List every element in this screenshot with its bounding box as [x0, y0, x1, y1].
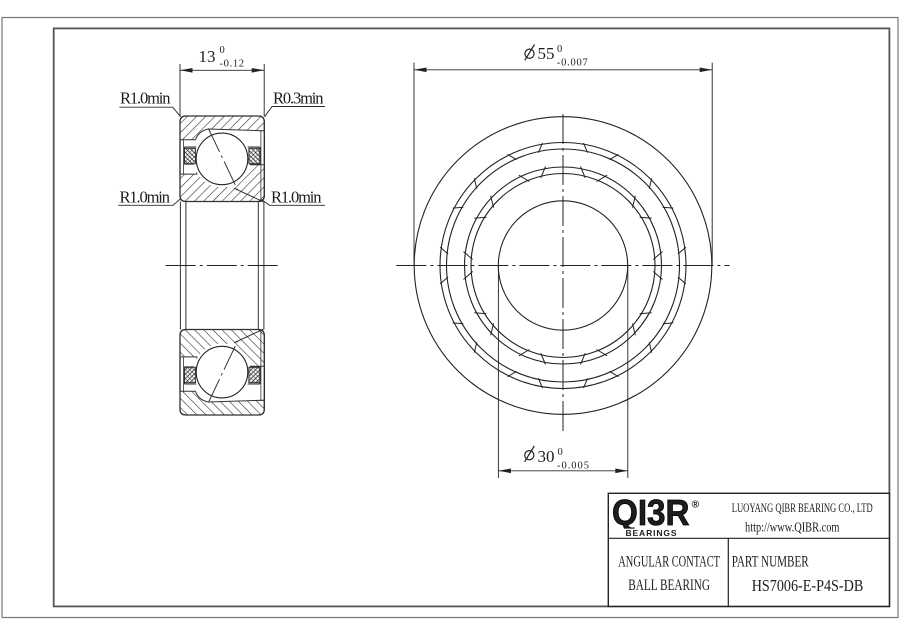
- svg-text:-0.007: -0.007: [557, 58, 588, 69]
- svg-text:0: 0: [220, 45, 225, 56]
- svg-text:R0.3min: R0.3min: [273, 89, 324, 108]
- svg-text:R1.0min: R1.0min: [271, 188, 322, 207]
- svg-text:30: 30: [538, 447, 555, 466]
- svg-text:BEARINGS: BEARINGS: [626, 528, 677, 538]
- svg-text:-0.12: -0.12: [220, 59, 245, 70]
- svg-text:R1.0min: R1.0min: [120, 88, 171, 107]
- svg-text:PART NUMBER: PART NUMBER: [732, 554, 809, 571]
- svg-text:0: 0: [557, 44, 562, 55]
- svg-text:13: 13: [199, 47, 216, 66]
- svg-text:LUOYANG QIBR BEARING CO., LTD: LUOYANG QIBR BEARING CO., LTD: [732, 501, 873, 515]
- svg-text:55: 55: [538, 44, 555, 63]
- svg-text:-0.005: -0.005: [557, 461, 589, 472]
- svg-text:HS7006-E-P4S-DB: HS7006-E-P4S-DB: [752, 576, 864, 595]
- svg-text:®: ®: [692, 499, 700, 511]
- svg-text:R1.0min: R1.0min: [120, 188, 171, 207]
- svg-text:http://www.QIBR.com: http://www.QIBR.com: [745, 520, 840, 535]
- svg-text:ANGULAR CONTACT: ANGULAR CONTACT: [618, 554, 720, 571]
- svg-text:0: 0: [558, 447, 563, 458]
- svg-text:BALL BEARING: BALL BEARING: [628, 577, 710, 594]
